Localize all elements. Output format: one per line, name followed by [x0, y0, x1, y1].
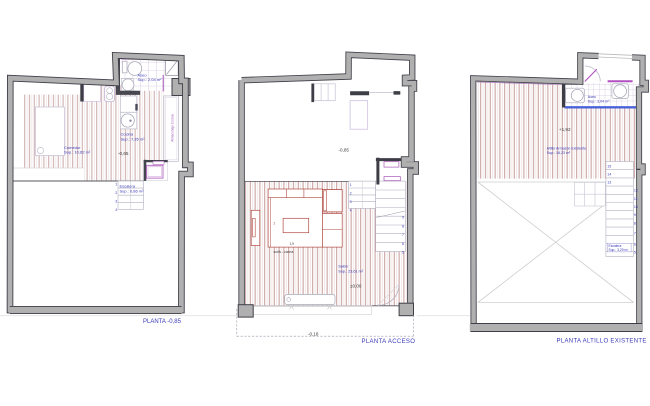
svg-text:1: 1: [350, 183, 352, 187]
svg-text:1: 1: [115, 182, 117, 186]
svg-text:7: 7: [634, 232, 636, 236]
svg-text:Almacenaje Cocina: Almacenaje Cocina: [171, 114, 175, 142]
svg-text:sofá - cama: sofá - cama: [274, 250, 295, 254]
svg-text:+1,92: +1,92: [559, 127, 571, 132]
svg-text:-0,85: -0,85: [339, 147, 350, 152]
svg-text:11: 11: [634, 197, 638, 201]
svg-text:8: 8: [634, 222, 636, 226]
svg-text:Sup.: 3,29 m²: Sup.: 3,29 m²: [609, 248, 630, 252]
svg-text:Sup.: 23,61 m²: Sup.: 23,61 m²: [338, 270, 364, 274]
svg-text:Sup.: 7,35 m²: Sup.: 7,35 m²: [121, 136, 146, 141]
svg-text:Aseo: Aseo: [588, 95, 596, 99]
svg-text:PLANTA -0,85: PLANTA -0,85: [143, 319, 182, 325]
svg-text:5: 5: [402, 251, 404, 255]
svg-text:Sup.: 3,04 m²: Sup.: 3,04 m²: [588, 99, 610, 103]
svg-text:9: 9: [402, 216, 404, 220]
svg-text:12: 12: [634, 189, 638, 193]
svg-text:PLANTA ALTILLO EXISTENTE: PLANTA ALTILLO EXISTENTE: [557, 339, 647, 345]
svg-text:5: 5: [634, 251, 636, 255]
svg-text:8: 8: [402, 224, 404, 228]
svg-text:6: 6: [634, 242, 636, 246]
svg-text:4: 4: [350, 208, 352, 212]
svg-text:2: 2: [115, 191, 117, 195]
svg-text:13: 13: [607, 181, 611, 185]
svg-text:±0,00: ±0,00: [350, 283, 362, 288]
svg-text:PLANTA ACCESO: PLANTA ACCESO: [362, 339, 416, 345]
svg-text:Salón: Salón: [338, 265, 348, 269]
svg-text:9: 9: [634, 213, 636, 217]
svg-text:2: 2: [274, 222, 276, 226]
svg-text:Sup.: 10,62 m²: Sup.: 10,62 m²: [64, 150, 91, 155]
svg-text:-0,65: -0,65: [118, 151, 129, 156]
svg-text:10: 10: [634, 205, 638, 209]
svg-text:4: 4: [115, 208, 117, 212]
svg-text:2: 2: [350, 192, 352, 196]
svg-text:14: 14: [607, 173, 611, 177]
svg-text:6: 6: [402, 242, 404, 246]
svg-text:Sup.: 2,04 m²: Sup.: 2,04 m²: [138, 77, 163, 82]
svg-text:Sup.: 16,23 m²: Sup.: 16,23 m²: [547, 151, 571, 155]
svg-text:7: 7: [402, 233, 404, 237]
svg-text:3: 3: [115, 200, 117, 204]
svg-text:-0,18: -0,18: [308, 331, 319, 336]
svg-text:3: 3: [350, 200, 352, 204]
svg-text:15: 15: [607, 165, 611, 169]
svg-text:Sup.: 0,86 m²: Sup.: 0,86 m²: [120, 188, 145, 193]
svg-text:Altillo Armazón Existente: Altillo Armazón Existente: [547, 146, 587, 150]
svg-text:1,9: 1,9: [290, 242, 295, 246]
